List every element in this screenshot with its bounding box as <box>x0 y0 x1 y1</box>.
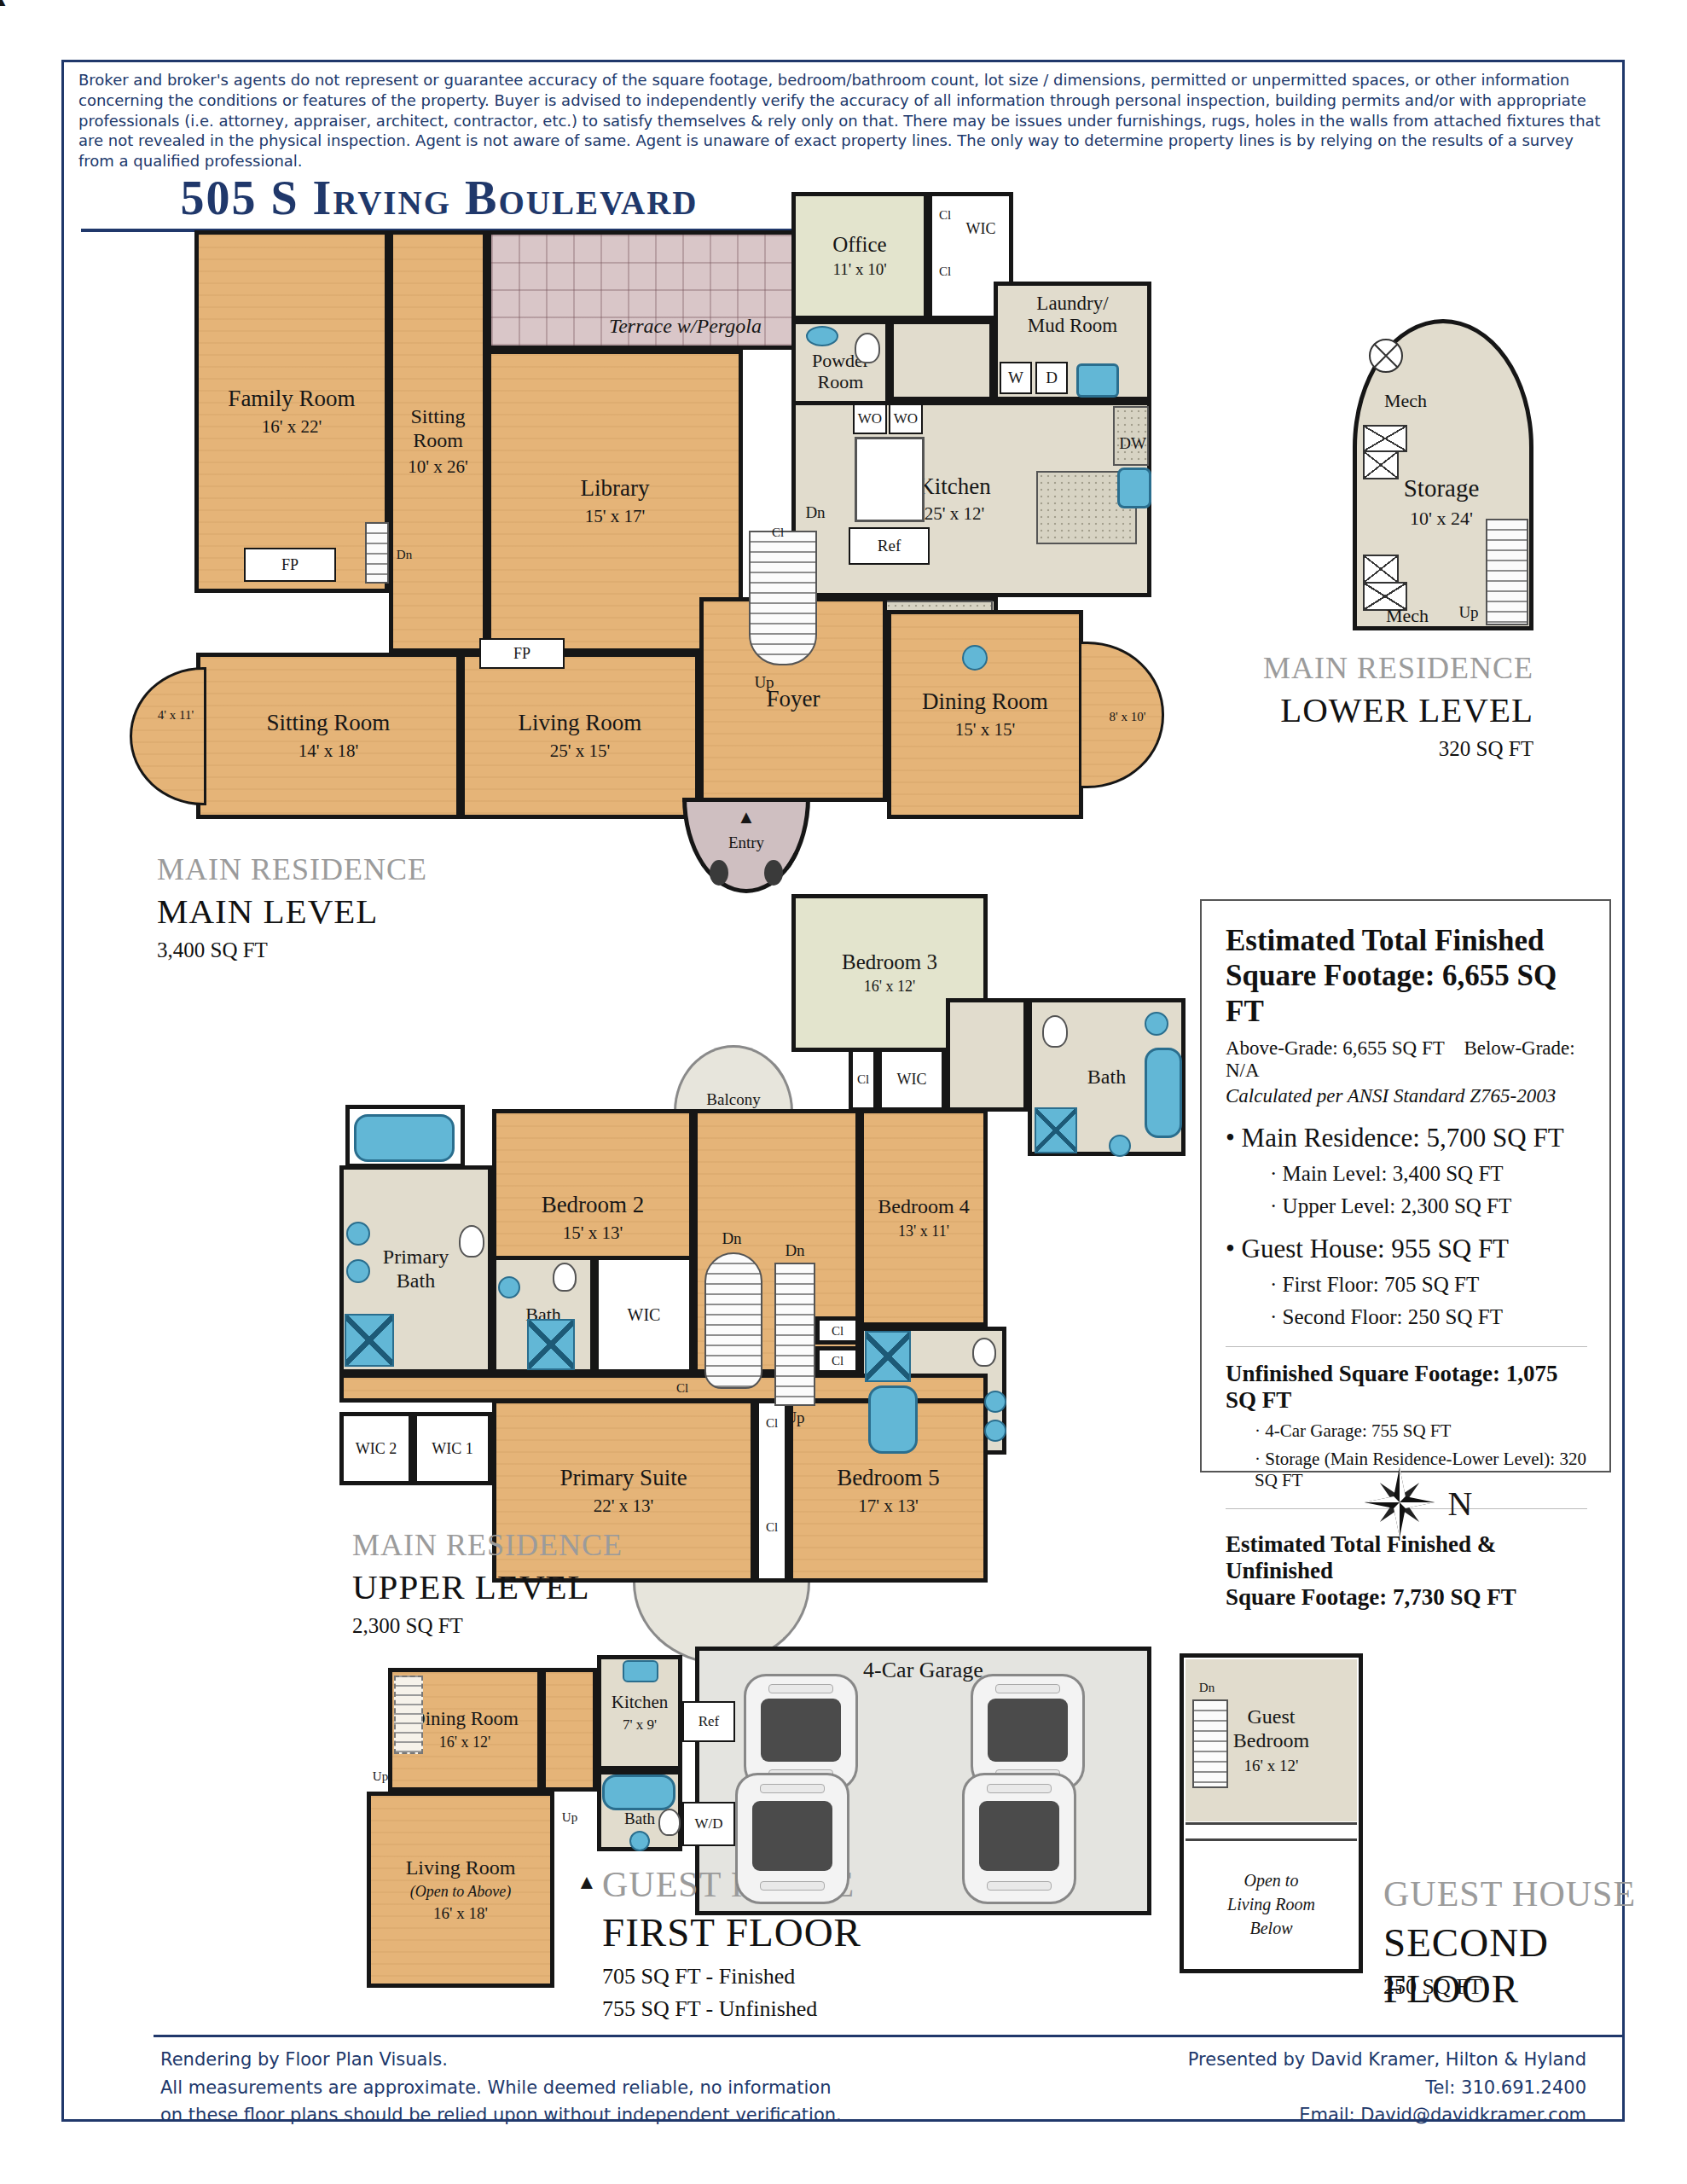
closet-label: Cl <box>772 526 784 540</box>
room-name: Guest Bedroom <box>1233 1705 1309 1752</box>
stair-dn-label: Dn <box>805 503 825 522</box>
room-dims: 11' x 10' <box>832 260 886 279</box>
sink-icon <box>984 1420 1006 1442</box>
stair-up-label: Up <box>754 673 774 692</box>
page-title: 505 S Irving Boulevard <box>81 171 797 232</box>
sink-icon <box>629 1831 650 1851</box>
laundry-sink-icon <box>1076 363 1119 398</box>
summary-grade: Above-Grade: 6,655 SQ FT Below-Grade: N/… <box>1226 1037 1587 1082</box>
shower-icon <box>527 1319 575 1370</box>
room-dims: 16' x 12' <box>842 978 937 996</box>
toilet-icon <box>855 333 880 363</box>
bay-right-dims: 8' x 10' <box>1110 710 1146 724</box>
wic1-box: WIC 1 <box>413 1412 492 1485</box>
washer-box: W <box>1000 362 1032 394</box>
room-name: Sitting Room <box>267 710 391 736</box>
dishwasher-icon <box>1117 468 1151 508</box>
shower-icon <box>865 1331 911 1382</box>
stair-dn-label: Dn <box>785 1241 804 1260</box>
room-bedroom4-label: Bedroom 4 13' x 11' <box>878 1195 969 1240</box>
entry-arrow-icon: ▲ <box>0 0 9 11</box>
sink-icon <box>1145 1012 1168 1036</box>
room-laundry-label: Laundry/ Mud Room <box>1028 293 1117 338</box>
room-name: Bedroom 2 <box>542 1192 645 1218</box>
summary-guest-house: • Guest House: 955 SQ FT <box>1226 1234 1587 1264</box>
balcony-rail-band <box>1186 1822 1357 1841</box>
closet-label: Cl <box>766 1520 778 1535</box>
room-dims: 25' x 12' <box>918 503 990 525</box>
footer-divider <box>154 2035 1622 2037</box>
open-to-below-note: Open to Living Room Below <box>1186 1868 1357 1940</box>
terrace-label: Terrace w/Pergola <box>609 315 762 339</box>
summary-ansi: Calculated per ANSI Standard Z765-2003 <box>1226 1085 1587 1107</box>
curved-staircase <box>704 1252 762 1389</box>
upper-level-residence-heading: MAIN RESIDENCE <box>352 1527 623 1563</box>
room-guest-kitchen-label: Kitchen 7' x 9' <box>612 1692 668 1733</box>
wall-oven-label: WO <box>894 410 918 427</box>
room-foyer-label: Foyer <box>767 686 820 712</box>
tub-icon <box>1145 1048 1182 1138</box>
guest-first-floor-heading: FIRST FLOOR <box>602 1909 861 1955</box>
sink-icon <box>346 1259 370 1283</box>
sink-icon <box>623 1660 658 1682</box>
dryer-box: D <box>1035 362 1068 394</box>
room-name: Bedroom 4 <box>878 1195 969 1219</box>
summary-divider <box>1226 1346 1587 1347</box>
guest-bedroom-label: Guest Bedroom 16' x 12' <box>1233 1705 1309 1774</box>
footer-contact-right: Presented by David Kramer, Hilton & Hyla… <box>853 2046 1586 2129</box>
mech-fan-icon <box>1368 338 1404 374</box>
room-name: Living Room <box>406 1856 516 1880</box>
sink-icon <box>1109 1135 1131 1157</box>
summary-garage: · 4-Car Garage: 755 SQ FT <box>1226 1420 1587 1442</box>
guest-second-sqft: 250 SQ FT <box>1383 1974 1482 2000</box>
room-primary-suite-label: Primary Suite 22' x 13' <box>559 1465 687 1516</box>
stair-dn-label: Dn <box>1199 1681 1215 1695</box>
closet-label: Cl <box>939 264 951 279</box>
wic-label: WIC <box>897 1071 927 1089</box>
summary-first-floor: · First Floor: 705 SQ FT <box>1226 1273 1587 1297</box>
stair-dn-label: Dn <box>722 1229 741 1248</box>
room-dims: 16' x 22' <box>228 416 355 438</box>
sink-icon <box>962 645 988 671</box>
room-family: Family Room 16' x 22' <box>194 230 389 593</box>
room-name: Bedroom 5 <box>837 1465 940 1491</box>
washer-dryer-box: W/D <box>682 1802 735 1846</box>
lower-level-heading: LOWER LEVEL <box>1226 689 1533 730</box>
room-name: Family Room <box>228 386 355 412</box>
closet-label: Cl <box>939 208 951 223</box>
compass-north-label: N <box>1448 1484 1473 1524</box>
wic-label: WIC <box>966 220 996 238</box>
compass-rose-icon <box>1363 1466 1436 1539</box>
room-sitting-14: Sitting Room 14' x 18' <box>196 653 461 819</box>
room-sitting-14-label: Sitting Room 14' x 18' <box>267 710 391 761</box>
room-office-label: Office 11' x 10' <box>832 233 886 280</box>
room-guest-living-label: Living Room (Open to Above) 16' x 18' <box>406 1856 516 1923</box>
room-dims: 15' x 13' <box>542 1223 645 1244</box>
footer-credits-left: Rendering by Floor Plan Visuals. All mea… <box>160 2046 842 2129</box>
room-name: Bedroom 3 <box>842 950 937 975</box>
sink-icon <box>984 1391 1006 1413</box>
room-note: (Open to Above) <box>406 1883 516 1901</box>
bath-label: Bath <box>624 1809 655 1828</box>
toilet-icon <box>658 1809 681 1836</box>
room-dims: 16' x 12' <box>411 1734 519 1751</box>
stair-dn-label: Dn <box>397 548 412 562</box>
fp-label: FP <box>281 556 299 574</box>
closet-label: Cl <box>857 1072 869 1087</box>
main-level-heading: MAIN LEVEL <box>157 891 378 932</box>
room-dims: 15' x 15' <box>922 719 1048 741</box>
room-kitchen-label: Kitchen 25' x 12' <box>918 473 990 525</box>
mech-label: Mech <box>1386 605 1429 627</box>
bath-label: Bath <box>1087 1066 1126 1089</box>
summary-title: Estimated Total Finished Square Footage:… <box>1226 923 1587 1029</box>
entry-arrow-icon: ▲ <box>737 806 756 828</box>
upper-hall-tile <box>946 998 1028 1112</box>
disclaimer-text: Broker and broker's agents do not repres… <box>78 70 1609 171</box>
room-family-label: Family Room 16' x 22' <box>228 386 355 437</box>
room-dims: 22' x 13' <box>559 1496 687 1517</box>
room-name: Dining Room <box>411 1708 519 1730</box>
room-name: Primary Suite <box>559 1465 687 1491</box>
room-dims: 14' x 18' <box>267 741 391 762</box>
toilet-icon <box>459 1225 484 1258</box>
main-level-residence-heading: MAIN RESIDENCE <box>157 851 427 887</box>
ref-box: Ref <box>682 1701 735 1742</box>
room-living: Living Room 25' x 15' <box>461 653 699 819</box>
room-name: Kitchen <box>612 1692 668 1712</box>
room-guest-dining-label: Dining Room 16' x 12' <box>411 1708 519 1751</box>
room-dims: 15' x 17' <box>581 506 650 527</box>
stair-up-label: Up <box>785 1409 804 1427</box>
straight-staircase <box>774 1263 815 1406</box>
wic-label: WIC <box>628 1305 661 1325</box>
lower-level-residence-heading: MAIN RESIDENCE <box>1226 650 1533 686</box>
room-name: Library <box>581 475 650 502</box>
summary-upper-level: · Upper Level: 2,300 SQ FT <box>1226 1194 1587 1218</box>
toilet-icon <box>1042 1015 1068 1048</box>
fireplace-family: FP <box>244 548 336 582</box>
wic1-label: WIC 1 <box>432 1440 473 1458</box>
room-bedroom2-label: Bedroom 2 15' x 13' <box>542 1192 645 1243</box>
mech-unit-icon <box>1363 450 1399 479</box>
garage-label: 4-Car Garage <box>863 1658 983 1683</box>
shower-icon <box>1035 1107 1077 1153</box>
tub-icon <box>602 1774 675 1810</box>
summary-main-residence: • Main Residence: 5,700 SQ FT <box>1226 1123 1587 1153</box>
room-bedroom4: Bedroom 4 13' x 11' <box>860 1109 988 1327</box>
upper-level-sqft: 2,300 SQ FT <box>352 1614 463 1638</box>
room-bedroom3-label: Bedroom 3 16' x 12' <box>842 950 937 996</box>
square-footage-summary: Estimated Total Finished Square Footage:… <box>1200 899 1611 1472</box>
room-bedroom5-label: Bedroom 5 17' x 13' <box>837 1465 940 1516</box>
washer-label: W <box>1008 369 1023 387</box>
closet-label: Cl <box>676 1381 688 1396</box>
wall-oven-box: WO <box>889 404 923 434</box>
family-dn-stair <box>365 522 389 584</box>
dryer-label: D <box>1046 369 1058 387</box>
wall-oven-box: WO <box>853 404 887 434</box>
entry-label: Entry <box>728 834 764 852</box>
storage-name: Storage <box>1404 474 1480 502</box>
toilet-icon <box>972 1338 996 1367</box>
wd-label: W/D <box>694 1815 722 1833</box>
room-office: Office 11' x 10' <box>791 192 928 320</box>
sink-icon <box>498 1276 520 1298</box>
toilet-icon <box>553 1263 577 1292</box>
summary-main-level: · Main Level: 3,400 SQ FT <box>1226 1162 1587 1186</box>
fireplace-living: FP <box>479 638 565 669</box>
ref-label: Ref <box>878 537 901 555</box>
wic2-box: WIC 2 <box>339 1412 413 1485</box>
closet-label: Cl <box>832 1324 843 1339</box>
storage-dims: 10' x 24' <box>1410 508 1473 530</box>
balcony-label: Balcony <box>706 1090 760 1109</box>
summary-second-floor: · Second Floor: 250 SQ FT <box>1226 1305 1587 1329</box>
fp-label: FP <box>513 645 530 663</box>
tub-icon <box>868 1385 918 1454</box>
guest-first-sqft-finished: 705 SQ FT - Finished <box>602 1964 795 1989</box>
room-dining-label: Dining Room 15' x 15' <box>922 688 1048 740</box>
stair-up-label: Up <box>1458 603 1478 622</box>
guest-corridor <box>542 1668 597 1792</box>
car-icon <box>962 1773 1076 1904</box>
stair-up-label: Up <box>562 1810 577 1825</box>
summary-unfinished: Unfinished Square Footage: 1,075 SQ FT <box>1226 1361 1587 1414</box>
planter-icon <box>710 860 728 886</box>
wic2-label: WIC 2 <box>356 1440 397 1458</box>
closet-label: Cl <box>832 1354 843 1368</box>
room-name: Sitting Room <box>408 405 468 452</box>
mech-unit-icon <box>1363 425 1407 452</box>
room-name: Kitchen <box>918 473 990 500</box>
guest-stair-up <box>394 1676 423 1754</box>
ref-box: Ref <box>849 527 930 565</box>
mech-label: Mech <box>1384 390 1427 412</box>
sink-icon <box>346 1222 370 1246</box>
room-name: Living Room <box>519 710 642 736</box>
hall-tile <box>890 320 994 401</box>
room-dims: 7' x 9' <box>612 1716 668 1734</box>
guest-first-sqft-unfinished: 755 SQ FT - Unfinished <box>602 1996 817 2022</box>
sink-icon <box>806 326 838 346</box>
main-level-sqft: 3,400 SQ FT <box>157 938 268 962</box>
ref-label: Ref <box>699 1713 720 1730</box>
entry-arrow-icon: ▲ <box>577 1871 597 1894</box>
tub-icon <box>354 1114 455 1162</box>
room-sitting-10: Sitting Room 10' x 26' <box>389 230 487 653</box>
room-guest-living: Living Room (Open to Above) 16' x 18' <box>367 1792 554 1988</box>
bay-left-dims: 4' x 11' <box>158 708 194 723</box>
closet-label: Cl <box>766 1416 778 1431</box>
lower-level-sqft: 320 SQ FT <box>1226 737 1533 761</box>
planter-icon <box>764 860 783 886</box>
room-name: Office <box>832 233 886 258</box>
floorplan-flyer-page: { "page": { "disclaimer": "Broker and br… <box>0 0 1687 2184</box>
room-sitting-10-label: Sitting Room 10' x 26' <box>408 405 468 477</box>
mech-unit-icon <box>1363 555 1399 584</box>
guest-second-house-heading: GUEST HOUSE <box>1383 1873 1636 1914</box>
room-living-label: Living Room 25' x 15' <box>519 710 642 761</box>
lower-staircase <box>1486 519 1528 625</box>
wic-mid: WIC <box>594 1256 693 1374</box>
kitchen-table <box>855 437 925 522</box>
room-dims: 16' x 18' <box>406 1904 516 1923</box>
room-dims: 16' x 12' <box>1233 1757 1309 1775</box>
summary-total: Estimated Total Finished & Unfinished Sq… <box>1226 1531 1587 1611</box>
upper-level-heading: UPPER LEVEL <box>352 1566 590 1607</box>
room-dims: 25' x 15' <box>519 741 642 762</box>
car-icon <box>735 1773 849 1904</box>
guest-second-staircase <box>1192 1699 1228 1788</box>
primary-bath-label: Primary Bath <box>383 1246 449 1292</box>
shower-icon <box>345 1314 394 1367</box>
room-library-label: Library 15' x 17' <box>581 475 650 526</box>
main-staircase <box>749 531 817 665</box>
wall-oven-label: WO <box>858 410 882 427</box>
room-dining: Dining Room 15' x 15' <box>887 610 1083 819</box>
room-dims: 17' x 13' <box>837 1496 940 1517</box>
stair-up-label: Up <box>373 1769 388 1784</box>
room-name: Dining Room <box>922 688 1048 715</box>
dishwasher-label: DW <box>1119 434 1146 453</box>
room-dims: 13' x 11' <box>878 1223 969 1240</box>
room-dims: 10' x 26' <box>408 456 468 478</box>
